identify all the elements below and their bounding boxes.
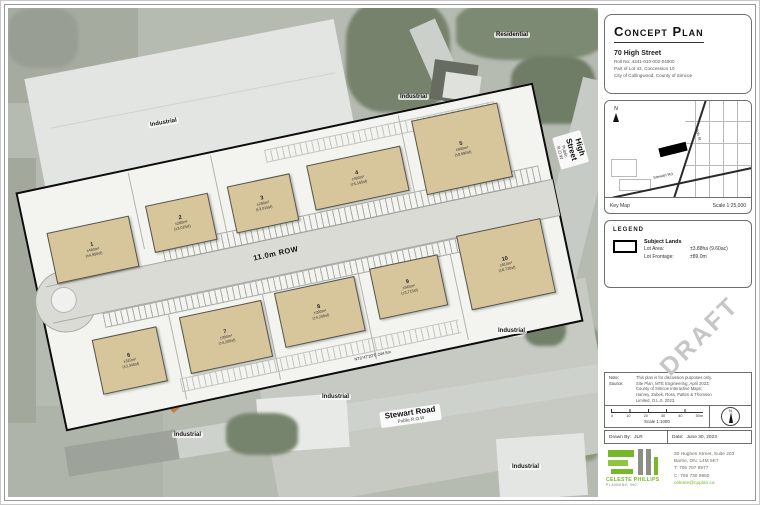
tree-cluster bbox=[226, 413, 298, 455]
lot-frontage-label: Lot Frontage: bbox=[644, 253, 686, 261]
legend-heading: LEGEND bbox=[613, 227, 743, 233]
north-label: N bbox=[722, 408, 739, 413]
key-map-caption: Key Map bbox=[610, 203, 630, 209]
key-map-street bbox=[611, 159, 637, 177]
source-line: Limited, O.L.S. 2023. bbox=[636, 398, 747, 404]
date-value: June 30, 2023 bbox=[686, 435, 716, 440]
scale-bar: 01020304050m Scale 1:1000 bbox=[605, 406, 709, 427]
key-map-street bbox=[685, 143, 751, 144]
aerial-texture-patch bbox=[8, 8, 78, 68]
title-block: Concept Plan 70 High Street Roll No: 434… bbox=[604, 14, 752, 94]
roll-number: Roll No: 4341-010-002-04900 bbox=[614, 59, 742, 66]
key-map-street-label: Stewart Rd bbox=[653, 171, 673, 180]
key-map-box: N High St Stewart Rd Key Map Scale 1:25,… bbox=[604, 100, 752, 214]
key-map-street bbox=[695, 101, 696, 197]
key-map-scale: Scale 1:25,000 bbox=[713, 203, 746, 209]
scale-text: Scale 1:1000 bbox=[611, 419, 703, 424]
scale-tick-label: 10 bbox=[626, 414, 630, 418]
key-map-street bbox=[709, 101, 710, 197]
north-arrow-icon: N bbox=[613, 107, 619, 122]
aerial-photo-map: 11.0m ROW 1 ±460m² (±4,950sf)2 ±280m² (±… bbox=[8, 8, 598, 497]
sign-off-row: Drawn By: JLR Date: June 30, 2023 bbox=[604, 430, 752, 444]
scale-tick-label: 0 bbox=[611, 414, 613, 418]
land-use-label: Industrial bbox=[172, 432, 203, 438]
building-footprint-6: 6 ±310m² (±3,340sf) bbox=[92, 326, 168, 394]
scale-tick-label: 40 bbox=[678, 414, 682, 418]
project-address: 70 High Street bbox=[614, 50, 742, 57]
firm-logo: CELESTE PHILLIPS PLANNING INC bbox=[604, 447, 668, 499]
key-map-subject-lands bbox=[658, 142, 687, 158]
scale-tick-label: 30 bbox=[661, 414, 665, 418]
firm-address-2: Barrie, ON, L4M 5K7 bbox=[674, 458, 752, 465]
north-label: N bbox=[614, 106, 618, 112]
firm-block: CELESTE PHILLIPS PLANNING INC 30 Hughes … bbox=[604, 447, 752, 499]
land-use-label: Industrial bbox=[510, 464, 541, 470]
page-title: Concept Plan bbox=[614, 24, 704, 43]
key-map-street bbox=[685, 165, 751, 166]
subject-lands-swatch bbox=[613, 240, 637, 253]
key-map-street bbox=[685, 121, 751, 122]
firm-phone-1: T: 705 797 8977 bbox=[674, 465, 752, 472]
key-map: N High St Stewart Rd bbox=[605, 101, 751, 197]
key-map-street bbox=[723, 101, 724, 197]
firm-address-1: 30 Hughes Street, Suite 203 bbox=[674, 451, 752, 458]
scale-tick-label: 50m bbox=[696, 414, 703, 418]
source-label: Source: bbox=[609, 381, 633, 404]
lot-area-label: Lot Area: bbox=[644, 245, 686, 253]
land-use-label: Industrial bbox=[496, 328, 527, 334]
firm-subname: PLANNING INC bbox=[606, 483, 668, 487]
land-use-label: Residential bbox=[494, 32, 530, 38]
legend-box: LEGEND Subject Lands Lot Area: ±3.88ha (… bbox=[604, 220, 752, 288]
lot-area-value: ±3.88ha (9.60ac) bbox=[690, 245, 728, 253]
lot-frontage-value: ±89.0m bbox=[690, 253, 728, 261]
land-use-label: Industrial bbox=[320, 394, 351, 400]
firm-phone-2: C: 705 730 9850 bbox=[674, 473, 752, 480]
firm-logo-icon bbox=[608, 449, 658, 475]
legal-description: Part of Lot 43, Concession 10 bbox=[614, 66, 742, 73]
drawn-by-value: JLR bbox=[634, 435, 643, 440]
firm-email: celeste@cpplan.ca bbox=[674, 480, 752, 487]
firm-contact: 30 Hughes Street, Suite 203 Barrie, ON, … bbox=[674, 447, 752, 499]
notes-box: Note: This plan is for discussion purpos… bbox=[604, 372, 752, 428]
scale-tick-label: 20 bbox=[644, 414, 648, 418]
north-arrow-box: N bbox=[709, 406, 751, 427]
key-map-street bbox=[737, 101, 738, 197]
land-use-label: Industrial bbox=[398, 94, 429, 100]
drawn-by-label: Drawn By: bbox=[609, 435, 631, 440]
municipality: City of Collingwood, County of Simcoe bbox=[614, 73, 742, 80]
north-arrow-icon: N bbox=[721, 407, 740, 426]
building-footprint-10: 10 ±810m² (±8,720sf) bbox=[456, 218, 556, 310]
date-label: Date: bbox=[672, 435, 683, 440]
